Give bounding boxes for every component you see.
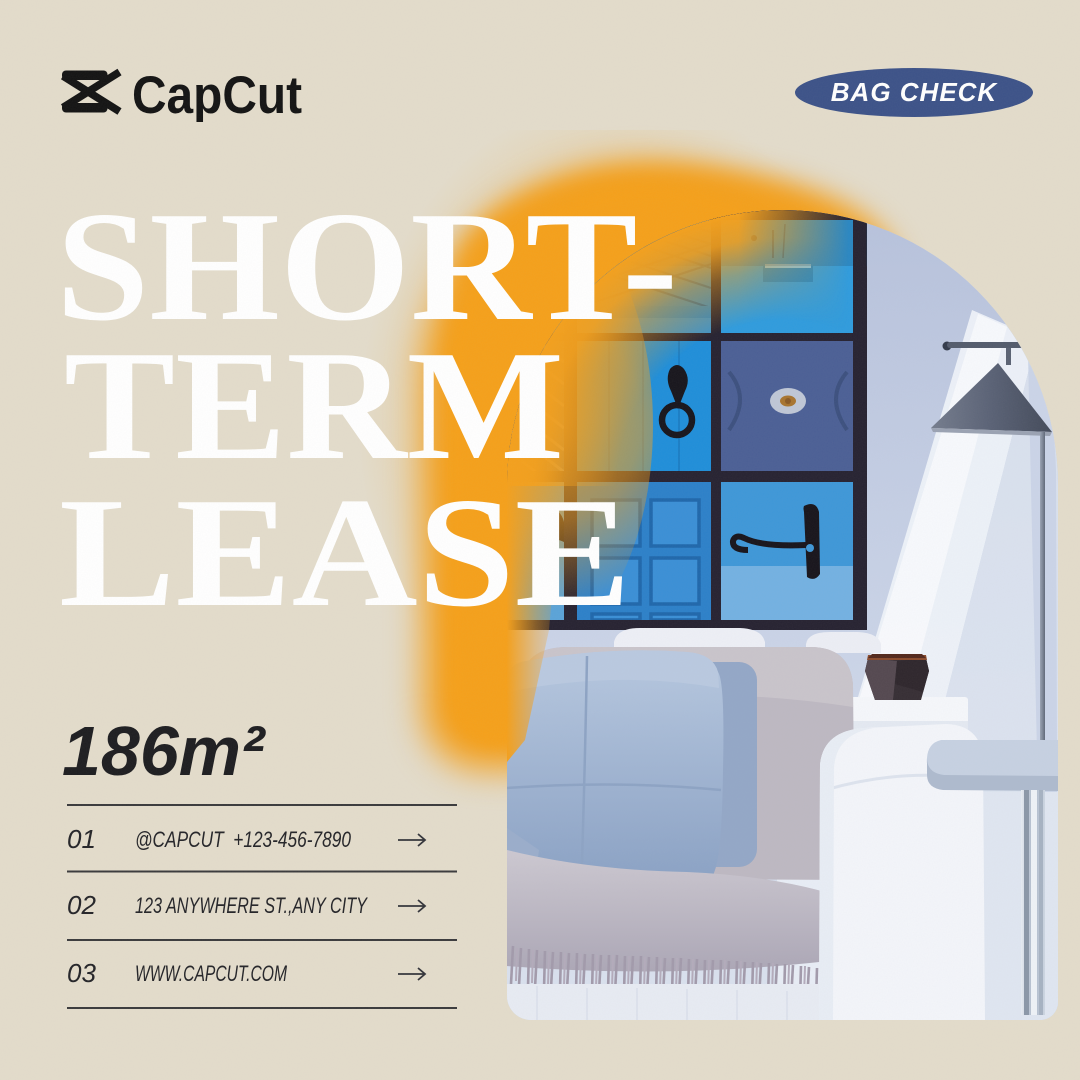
svg-text:01: 01 [67,824,96,854]
svg-text:03: 03 [67,958,96,988]
svg-text:LEASE: LEASE [59,465,631,639]
svg-text:@CAPCUT +123-456-7890: @CAPCUT +123-456-7890 [135,827,352,852]
svg-text:WWW.CAPCUT.COM: WWW.CAPCUT.COM [135,961,287,986]
svg-text:CapCut: CapCut [132,66,302,122]
svg-text:02: 02 [67,890,96,920]
svg-text:123 ANYWHERE ST.,ANY CITY: 123 ANYWHERE ST.,ANY CITY [135,893,368,918]
